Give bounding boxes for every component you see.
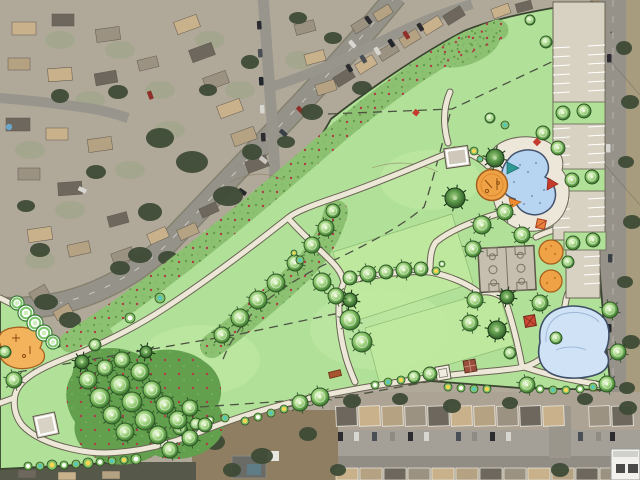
aerial-tree-blob: [110, 261, 130, 275]
shrub-center: [472, 387, 476, 391]
tree-icon: [131, 454, 141, 464]
townhouse-icon: [576, 468, 598, 480]
tree-center: [145, 351, 147, 353]
house-icon: [48, 67, 73, 82]
tree-icon: [280, 405, 288, 413]
car-icon: [259, 77, 264, 86]
site-plan-canvas: [0, 0, 640, 480]
tree-center: [121, 359, 123, 361]
tree-icon: [198, 418, 212, 432]
tree-center: [294, 262, 296, 264]
aerial-tree-blob: [502, 397, 518, 409]
aerial-tree-blob: [299, 427, 317, 441]
aerial-tree-blob: [616, 41, 632, 55]
tree-center: [403, 269, 405, 271]
tree-icon: [47, 460, 57, 470]
car-icon: [424, 432, 429, 441]
yard-patch: [115, 161, 145, 179]
shelter-orange-icon: [536, 219, 547, 230]
aerial-tree-blob: [618, 156, 634, 168]
tree-center: [13, 379, 15, 381]
yard-patch: [55, 201, 85, 219]
shrub-center: [74, 462, 78, 466]
aerial-tree-blob: [551, 463, 569, 477]
house-icon: [18, 168, 40, 180]
car-icon: [607, 54, 612, 63]
aerial-tree-blob: [176, 151, 208, 173]
aerial-tree-blob: [330, 464, 346, 476]
tree-icon: [384, 378, 392, 386]
tree-icon: [89, 339, 101, 351]
tree-icon: [501, 121, 509, 129]
shrub-center: [386, 380, 390, 384]
shrub-center: [591, 385, 595, 389]
shrub-center: [446, 385, 450, 389]
pavilion-icon: [463, 359, 477, 373]
tree-center: [332, 210, 334, 212]
tree-center: [583, 110, 585, 112]
townhouse-icon: [504, 468, 526, 480]
tree-center: [195, 423, 197, 425]
shrub-center: [38, 464, 42, 468]
car-icon: [338, 432, 343, 441]
aerial-tree-blob: [128, 247, 152, 263]
tree-icon: [291, 250, 297, 256]
tree-icon: [457, 384, 465, 392]
tree-center: [335, 295, 337, 297]
tree-center: [124, 431, 127, 434]
townhouse-icon: [474, 406, 496, 427]
shrub-center: [503, 123, 507, 127]
yard-patch: [225, 81, 255, 99]
tree-icon: [536, 126, 550, 140]
tree-center: [204, 424, 206, 426]
shrub-center: [51, 340, 55, 344]
aerial-tree-blob: [251, 448, 273, 464]
tree-center: [413, 376, 415, 378]
townhouse-icon: [589, 406, 611, 427]
tree-icon: [46, 335, 60, 349]
aerial-tree-blob: [51, 89, 69, 103]
aerial-tree-blob: [86, 165, 106, 179]
aerial-tree-blob: [619, 401, 637, 415]
tree-center: [385, 271, 387, 273]
aerial-tree-blob: [301, 104, 323, 120]
tree-icon: [397, 376, 405, 384]
picnic-pad-west: [33, 412, 59, 438]
tree-center: [617, 351, 619, 353]
townhouse-icon: [497, 406, 519, 427]
shrub-center: [282, 407, 286, 411]
aerial-tree-blob: [277, 136, 295, 148]
car-icon: [608, 254, 613, 263]
tree-center: [349, 319, 352, 322]
shelter-red-icon: [524, 315, 537, 328]
shrub-center: [15, 301, 19, 305]
tree-center: [139, 371, 142, 374]
car-icon: [258, 49, 263, 58]
aerial-tree-blob: [621, 95, 639, 109]
aerial-tree-blob: [213, 186, 243, 206]
aerial-tree-blob: [242, 144, 262, 160]
park-master-plan-image: [0, 0, 640, 480]
tree-icon: [96, 458, 104, 466]
picnic-pad-north: [444, 145, 471, 168]
tree-icon: [432, 267, 440, 275]
tree-center: [481, 224, 484, 227]
shrub-center: [564, 388, 568, 392]
shrub-center: [243, 419, 247, 423]
car-icon: [490, 432, 495, 441]
tree-icon: [576, 385, 584, 393]
tree-icon: [589, 383, 597, 391]
shrub-center: [434, 269, 438, 273]
shrub-center: [479, 158, 482, 161]
shrub-center: [24, 311, 29, 316]
car-icon: [456, 432, 461, 441]
tree-center: [111, 414, 114, 417]
scale-inset: [611, 449, 640, 480]
tree-center: [567, 261, 569, 263]
tree-center: [311, 244, 313, 246]
tree-icon: [470, 147, 478, 155]
yard-patch: [15, 141, 45, 159]
tree-center: [164, 404, 167, 407]
tree-center: [495, 328, 499, 332]
tree-icon: [565, 173, 579, 187]
house-icon: [46, 128, 68, 140]
shrub-center: [578, 387, 582, 391]
tree-center: [469, 322, 471, 324]
aerial-tree-blob: [108, 85, 128, 99]
basketball-courts-icon: [478, 246, 536, 293]
tree-icon: [585, 170, 599, 184]
tree-center: [151, 389, 154, 392]
tree-icon: [36, 462, 44, 470]
tree-icon: [540, 36, 552, 48]
aerial-tree-blob: [138, 203, 162, 221]
aerial-tree-blob: [30, 243, 50, 257]
townhouse-icon: [528, 468, 550, 480]
tree-center: [94, 344, 96, 346]
tree-icon: [221, 414, 229, 422]
tree-center: [325, 227, 327, 229]
tree-icon: [379, 265, 393, 279]
tree-center: [591, 176, 593, 178]
aerial-tree-blob: [223, 463, 241, 477]
shrub-center: [472, 149, 476, 153]
shrub-center: [110, 459, 114, 463]
tree-center: [592, 239, 594, 241]
tree-icon: [155, 293, 165, 303]
tree-icon: [549, 386, 557, 394]
car-icon: [610, 432, 615, 441]
tree-center: [542, 132, 544, 134]
tree-center: [521, 234, 523, 236]
tree-center: [239, 317, 242, 320]
tree-icon: [483, 385, 491, 393]
tree-center: [104, 367, 106, 369]
townhouse-icon: [543, 406, 565, 427]
tree-center: [81, 361, 84, 364]
shrub-center: [269, 411, 273, 415]
shrub-center: [223, 416, 227, 420]
shrub-center: [50, 463, 55, 468]
tree-icon: [550, 332, 562, 344]
tree-icon: [444, 383, 452, 391]
tree-icon: [24, 462, 32, 470]
shrub-center: [399, 378, 403, 382]
shrub-center: [373, 383, 377, 387]
shrub-center: [298, 258, 302, 262]
tree-center: [99, 397, 102, 400]
shrub-center: [128, 316, 133, 321]
shrub-center: [441, 263, 444, 266]
tree-center: [319, 396, 322, 399]
tree-icon: [566, 236, 580, 250]
aerial-tree-blob: [577, 393, 593, 405]
tree-center: [555, 337, 557, 339]
car-icon: [596, 432, 601, 441]
tree-icon: [267, 409, 275, 417]
tree-center: [429, 373, 431, 375]
playground-circle-large: [477, 170, 508, 201]
tree-icon: [371, 381, 379, 389]
car-icon: [578, 432, 583, 441]
tree-center: [606, 383, 608, 385]
tree-icon: [562, 256, 574, 268]
car-icon: [472, 432, 477, 441]
tree-center: [453, 196, 457, 200]
house-icon: [102, 471, 120, 479]
townhouse-icon: [384, 468, 406, 480]
shrub-center: [33, 321, 38, 326]
tree-icon: [343, 271, 357, 285]
tree-center: [189, 407, 191, 409]
tree-center: [545, 41, 547, 43]
tree-center: [144, 419, 147, 422]
tree-icon: [525, 15, 535, 25]
tree-icon: [254, 413, 262, 421]
tree-center: [509, 352, 511, 354]
aerial-tree-blob: [617, 276, 633, 288]
shrub-center: [98, 460, 102, 464]
shrub-center: [459, 386, 463, 390]
tree-center: [221, 334, 223, 336]
tree-center: [157, 434, 160, 437]
tree-center: [609, 309, 611, 311]
tree-icon: [477, 156, 483, 162]
tree-icon: [241, 417, 249, 425]
townhouse-icon: [480, 468, 502, 480]
house-icon: [18, 470, 36, 478]
tree-icon: [439, 261, 445, 267]
townhouse-icon: [456, 468, 478, 480]
tree-center: [420, 268, 422, 270]
car-icon: [390, 432, 395, 441]
tree-center: [504, 211, 506, 213]
tree-center: [257, 299, 260, 302]
tree-icon: [504, 347, 516, 359]
aerial-tree-blob: [146, 128, 174, 148]
tree-center: [349, 277, 351, 279]
car-icon: [261, 133, 266, 142]
car-icon: [354, 432, 359, 441]
townhouse-icon: [336, 406, 358, 427]
backyard-pool-icon: [6, 124, 12, 130]
tree-center: [321, 281, 324, 284]
tree-center: [557, 147, 559, 149]
car-icon: [506, 432, 511, 441]
shrub-center: [134, 457, 139, 462]
tree-icon: [485, 113, 495, 123]
tree-icon: [551, 141, 565, 155]
tree-icon: [83, 458, 93, 468]
house-icon: [12, 22, 36, 35]
tree-center: [131, 401, 134, 404]
tree-center: [493, 156, 497, 160]
aerial-tree-blob: [619, 382, 635, 394]
tree-center: [299, 402, 301, 404]
tree-center: [119, 384, 122, 387]
shrub-center: [86, 461, 91, 466]
tree-icon: [120, 456, 128, 464]
pond-icon: [539, 306, 609, 378]
tree-icon: [108, 457, 116, 465]
tree-center: [489, 117, 491, 119]
shrub-center: [158, 296, 163, 301]
tree-icon: [326, 204, 340, 218]
aerial-tree-blob: [17, 200, 35, 212]
tree-icon: [60, 461, 68, 469]
tree-icon: [577, 104, 591, 118]
car-icon: [606, 144, 611, 153]
townhouse-icon: [360, 468, 382, 480]
aerial-tree-blob: [289, 12, 307, 24]
house-icon: [58, 472, 76, 480]
tree-center: [571, 179, 573, 181]
tree-center: [275, 282, 278, 285]
car-icon: [260, 105, 265, 114]
tree-center: [562, 112, 564, 114]
tree-icon: [556, 106, 570, 120]
shrub-center: [538, 387, 542, 391]
aerial-tree-blob: [443, 399, 461, 413]
tree-icon: [0, 346, 11, 358]
tree-center: [506, 296, 509, 299]
shrub-center: [485, 387, 489, 391]
tree-center: [4, 351, 6, 353]
tree-icon: [423, 367, 437, 381]
tree-center: [474, 299, 476, 301]
townhouse-icon: [432, 468, 454, 480]
tree-center: [87, 379, 90, 382]
tree-icon: [72, 460, 80, 468]
tree-center: [169, 449, 171, 451]
aerial-tree-blob: [241, 55, 259, 69]
car-icon: [257, 21, 262, 30]
tree-center: [526, 384, 528, 386]
tree-icon: [586, 233, 600, 247]
tree-center: [472, 248, 474, 250]
tree-icon: [408, 371, 420, 383]
house-icon: [8, 58, 30, 70]
tree-icon: [562, 386, 570, 394]
aerial-tree-blob: [324, 32, 342, 44]
car-icon: [408, 432, 413, 441]
shrub-center: [62, 463, 66, 467]
tree-center: [529, 19, 531, 21]
shrub-center: [293, 252, 296, 255]
tree-center: [539, 302, 541, 304]
townhouse-icon: [408, 468, 430, 480]
tree-center: [189, 437, 191, 439]
tree-center: [361, 341, 364, 344]
tree-icon: [296, 256, 304, 264]
aerial-tree-blob: [392, 393, 408, 405]
tree-center: [572, 242, 574, 244]
aerial-tree-blob: [199, 84, 217, 96]
shrub-center: [551, 388, 555, 392]
yard-patch: [105, 41, 135, 59]
yard-patch: [45, 31, 75, 49]
tree-center: [177, 419, 180, 422]
townhouse-icon: [359, 406, 381, 427]
tree-icon: [470, 385, 478, 393]
house-icon: [52, 14, 74, 26]
townhouse-icon: [520, 406, 542, 427]
townhouse-icon: [382, 406, 404, 427]
shrub-center: [42, 331, 47, 336]
car-icon: [372, 432, 377, 441]
shrub-center: [26, 464, 30, 468]
shrub-center: [256, 415, 260, 419]
tree-icon: [536, 385, 544, 393]
tree-center: [349, 299, 352, 302]
shrub-center: [122, 458, 126, 462]
tree-icon: [414, 262, 428, 276]
tree-center: [367, 273, 369, 275]
townhouse-icon: [405, 406, 427, 427]
aerial-tree-blob: [34, 294, 58, 310]
tree-icon: [125, 313, 135, 323]
